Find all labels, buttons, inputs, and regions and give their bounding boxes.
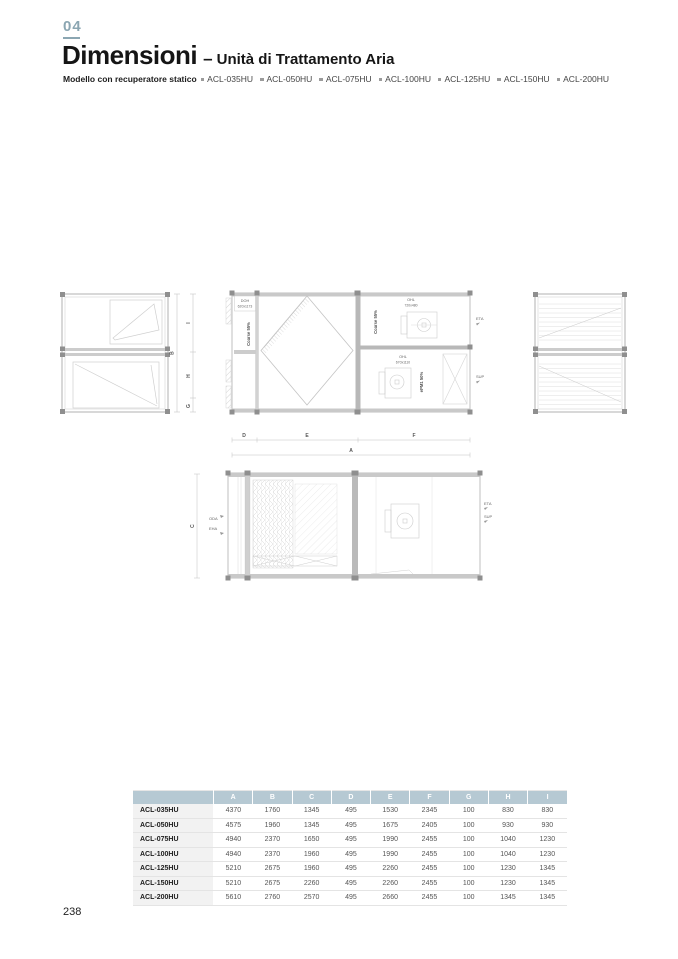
dim-value-cell: 1230 [488, 862, 527, 877]
dim-value-cell: 495 [331, 891, 370, 906]
dim-value-cell: 1650 [292, 833, 331, 848]
column-header: B [253, 791, 292, 805]
heat-exchanger-diamond [261, 296, 353, 405]
dim-value-cell: 495 [331, 833, 370, 848]
rear-view-coil-bottom [539, 364, 621, 405]
dim-value-cell: 4940 [214, 833, 253, 848]
dim-label-c: C [190, 524, 196, 528]
model-items: ACL-035HUACL-050HUACL-075HUACL-100HUACL-… [201, 73, 616, 84]
square-bullet-icon [497, 78, 501, 82]
dim-value-cell: 2760 [253, 891, 292, 906]
model-name: ACL-125HU [444, 74, 490, 84]
front-view-damper-bottom [73, 362, 159, 408]
dim-label-e: E [305, 433, 309, 439]
dim-value-cell: 1345 [528, 891, 567, 906]
dim-value-cell: 930 [488, 818, 527, 833]
rear-view-drawing [528, 286, 644, 422]
model-name: ACL-075HU [326, 74, 372, 84]
column-header: A [214, 791, 253, 805]
dim-value-cell: 100 [449, 804, 488, 818]
dim-value-cell: 1530 [371, 804, 410, 818]
model-column-header [133, 791, 214, 805]
dim-value-cell: 2405 [410, 818, 449, 833]
table-row: ACL-050HU4575196013454951675240510093093… [133, 818, 567, 833]
model-list: Modello con recuperatore statico ACL-035… [63, 73, 616, 84]
airflow-sup-side-label: SUP [484, 514, 493, 519]
dim-value-cell: 100 [449, 891, 488, 906]
dim-value-cell: 1960 [292, 847, 331, 862]
dim-value-cell: 100 [449, 862, 488, 877]
dim-value-cell: 100 [449, 833, 488, 848]
silencer-box [443, 354, 467, 404]
front-view-dim-lines [174, 294, 196, 412]
dim-value-cell: 1345 [488, 891, 527, 906]
airflow-eha-arrow-icon [220, 532, 224, 535]
square-bullet-icon [438, 78, 442, 82]
heat-exchanger-pleats [253, 480, 293, 568]
page-number: 238 [63, 906, 81, 918]
dim-value-cell: 1760 [253, 804, 292, 818]
dim-value-cell: 100 [449, 818, 488, 833]
airflow-eta-label: ETA [476, 316, 484, 321]
dim-label-b: B [170, 351, 176, 355]
dim-value-cell: 5210 [214, 876, 253, 891]
dim-value-cell: 1230 [528, 833, 567, 848]
fan-bottom [379, 368, 411, 398]
fan-top-label: OHL [407, 298, 415, 302]
fan-top [401, 312, 437, 338]
dim-value-cell: 2455 [410, 862, 449, 877]
column-header: E [371, 791, 410, 805]
model-name: ACL-050HU [267, 74, 313, 84]
fan-top-size-label: 720x480 [404, 304, 417, 308]
airflow-labels-left: ODA EHA [209, 515, 224, 535]
column-header: F [410, 791, 449, 805]
dim-value-cell: 100 [449, 876, 488, 891]
model-list-item: ACL-075HU [319, 74, 371, 84]
dim-value-cell: 1960 [292, 862, 331, 877]
dimensions-table: ABCDEFGHI ACL-035HU437017601345495153023… [133, 790, 567, 906]
filter-fine-label: ePM1 50% [419, 371, 424, 392]
square-bullet-icon [557, 78, 561, 82]
airflow-eta-side-label: ETA [484, 501, 492, 506]
table-row: ACL-150HU5210267522604952260245510012301… [133, 876, 567, 891]
dim-value-cell: 2675 [253, 862, 292, 877]
square-bullet-icon [379, 78, 383, 82]
filter-left-label: Coarse 55% [246, 322, 251, 346]
airflow-oda-arrow-icon [220, 515, 224, 518]
table-row: ACL-075HU4940237016504951990245510010401… [133, 833, 567, 848]
table-row: ACL-125HU5210267519604952260245510012301… [133, 862, 567, 877]
airflow-sup-label: SUP [476, 374, 485, 379]
dim-value-cell: 2260 [371, 876, 410, 891]
airflow-sup-side-arrow-icon [484, 520, 488, 523]
dim-value-cell: 4370 [214, 804, 253, 818]
model-name: ACL-150HU [504, 74, 550, 84]
top-view-left-flanges [226, 298, 231, 408]
dim-value-cell: 830 [528, 804, 567, 818]
model-cell: ACL-125HU [133, 862, 214, 877]
dim-value-cell: 2345 [410, 804, 449, 818]
dim-value-cell: 1040 [488, 833, 527, 848]
dim-value-cell: 1990 [371, 833, 410, 848]
table-row: ACL-035HU4370176013454951530234510083083… [133, 804, 567, 818]
dim-value-cell: 1990 [371, 847, 410, 862]
top-view-damper-box: DOH 620x1173 [235, 296, 256, 311]
dim-value-cell: 930 [528, 818, 567, 833]
dim-value-cell: 2370 [253, 833, 292, 848]
dim-value-cell: 5210 [214, 862, 253, 877]
dim-value-cell: 2455 [410, 847, 449, 862]
model-name: ACL-100HU [385, 74, 431, 84]
damper-size-label: 620x1173 [238, 305, 253, 309]
dim-label-h: H [186, 374, 192, 378]
damper-label: DOH [241, 299, 250, 303]
dim-value-cell: 1345 [528, 876, 567, 891]
filter-block [295, 484, 337, 554]
column-header: I [528, 791, 567, 805]
model-cell: ACL-050HU [133, 818, 214, 833]
model-name: ACL-035HU [207, 74, 253, 84]
dim-label-g: G [186, 404, 192, 408]
dim-value-cell: 2570 [292, 891, 331, 906]
airflow-labels-right-side: ETA SUP [484, 501, 493, 523]
front-view-frame [62, 294, 168, 412]
fan-bottom-size-label: 670x1110 [396, 361, 411, 365]
dim-value-cell: 2455 [410, 891, 449, 906]
model-list-item: ACL-200HU [557, 74, 609, 84]
dim-value-cell: 1675 [371, 818, 410, 833]
dim-value-cell: 1960 [253, 818, 292, 833]
model-list-item: ACL-100HU [379, 74, 431, 84]
column-header: G [449, 791, 488, 805]
model-list-item: ACL-125HU [438, 74, 490, 84]
model-cell: ACL-200HU [133, 891, 214, 906]
dim-label-a: A [349, 448, 353, 454]
dim-value-cell: 1345 [292, 804, 331, 818]
table-row: ACL-200HU5610276025704952660245510013451… [133, 891, 567, 906]
catalog-page: 04 Dimensioni–Unità di Trattamento Aria … [0, 0, 678, 959]
page-title: Dimensioni–Unità di Trattamento Aria [62, 40, 394, 71]
dim-value-cell: 1345 [292, 818, 331, 833]
floor-ramp [371, 570, 413, 574]
dim-value-cell: 495 [331, 876, 370, 891]
dim-value-cell: 100 [449, 847, 488, 862]
chapter-underline [63, 37, 80, 39]
dim-value-cell: 495 [331, 804, 370, 818]
airflow-oda-label: ODA [209, 516, 218, 521]
square-bullet-icon [260, 78, 264, 82]
model-cell: ACL-150HU [133, 876, 214, 891]
dim-value-cell: 495 [331, 847, 370, 862]
fan-bottom-label: OHL [399, 355, 407, 359]
title-main: Dimensioni [62, 40, 197, 70]
front-view-drawing: B I H G [55, 286, 205, 422]
model-list-item: ACL-150HU [497, 74, 549, 84]
side-view-fan [385, 504, 419, 538]
dim-value-cell: 2675 [253, 876, 292, 891]
square-bullet-icon [319, 78, 323, 82]
dim-value-cell: 2455 [410, 876, 449, 891]
model-cell: ACL-075HU [133, 833, 214, 848]
dim-value-cell: 2370 [253, 847, 292, 862]
dim-label-f: F [412, 433, 415, 439]
table-header: ABCDEFGHI [133, 791, 567, 805]
dim-value-cell: 5610 [214, 891, 253, 906]
rear-view-coil-top [539, 304, 621, 340]
table-row: ACL-100HU4940237019604951990245510010401… [133, 847, 567, 862]
model-list-item: ACL-050HU [260, 74, 312, 84]
model-list-label: Modello con recuperatore statico [63, 74, 197, 84]
model-cell: ACL-100HU [133, 847, 214, 862]
dim-value-cell: 830 [488, 804, 527, 818]
dim-value-cell: 495 [331, 818, 370, 833]
dim-label-i: I [186, 322, 192, 324]
dim-value-cell: 2260 [371, 862, 410, 877]
filter-right-label: Coarse 55% [373, 310, 378, 334]
dim-value-cell: 4940 [214, 847, 253, 862]
title-dash: – [203, 49, 212, 68]
model-list-item: ACL-035HU [201, 74, 253, 84]
dim-value-cell: 2455 [410, 833, 449, 848]
airflow-eta-arrow-icon [476, 323, 480, 326]
column-header: H [488, 791, 527, 805]
side-view-drawing: C ODA EHA [185, 460, 503, 592]
header-row: ABCDEFGHI [133, 791, 567, 805]
column-header: D [331, 791, 370, 805]
airflow-labels-right: ETA SUP [476, 316, 485, 384]
front-view-damper-top [110, 300, 162, 344]
column-header: C [292, 791, 331, 805]
model-name: ACL-200HU [563, 74, 609, 84]
chapter-number: 04 [63, 18, 82, 35]
dim-value-cell: 1230 [528, 847, 567, 862]
title-subtitle: Unità di Trattamento Aria [217, 51, 395, 68]
airflow-eha-label: EHA [209, 526, 218, 531]
dim-label-d: D [242, 433, 246, 439]
square-bullet-icon [201, 78, 205, 82]
dim-value-cell: 1040 [488, 847, 527, 862]
model-cell: ACL-035HU [133, 804, 214, 818]
airflow-sup-arrow-icon [476, 381, 480, 384]
dim-value-cell: 1230 [488, 876, 527, 891]
dim-value-cell: 495 [331, 862, 370, 877]
top-view-drawing: DOH 620x1173 Coarse 55% OHL 720x480 Coar… [225, 286, 493, 462]
airflow-eta-side-arrow-icon [484, 507, 488, 510]
dim-value-cell: 2260 [292, 876, 331, 891]
dim-value-cell: 2660 [371, 891, 410, 906]
dim-value-cell: 4575 [214, 818, 253, 833]
table-body: ACL-035HU4370176013454951530234510083083… [133, 804, 567, 905]
dim-value-cell: 1345 [528, 862, 567, 877]
